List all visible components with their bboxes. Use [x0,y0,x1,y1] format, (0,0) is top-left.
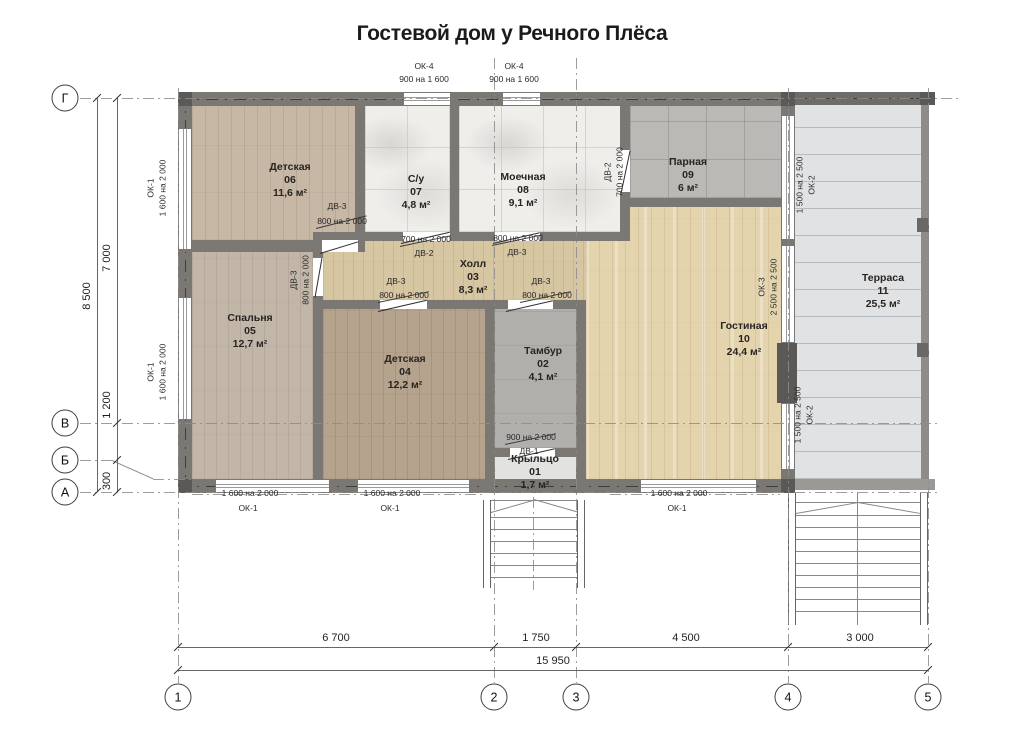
corner-bottom-left [178,479,192,493]
room-area: 6 м² [669,181,707,194]
tag-code: ОК-3 [756,259,768,316]
room-area: 12,7 м² [227,337,272,350]
dim-bottom-total: 15 950 [536,655,570,667]
tag-dv3-moech-code: ДВ-3 [508,247,527,257]
tag-dv1-code: ДВ-1 [520,446,539,456]
tag-ok4-2-size: 900 на 1 600 [489,74,539,84]
terrace-rail-left [788,493,796,625]
terrace-step-7 [796,587,920,588]
tag-dv2-parnaya: ДВ-2 700 на 2 000 [602,147,627,197]
porch-centerline [533,497,534,590]
tag-dv2-su-size: 700 на 2 000 [401,234,451,244]
room-number: 09 [669,169,707,182]
room-name: Тамбур [524,345,562,358]
dim-bottom-seg-1: 6 700 [322,632,350,644]
porch-rail-left [483,500,491,588]
axis-line-a [80,492,940,493]
tag-code: ДВ-3 [288,255,300,305]
room-label-terrasa-11: Терраса 11 25,5 м² [862,272,904,310]
tag-dv3-det06-code: ДВ-3 [328,201,347,211]
axis-circle-b: Б [52,447,79,474]
tag-ok1-bottom-2-code: ОК-1 [380,503,399,513]
tag-ok3-right: ОК-3 2 500 на 2 500 [756,259,781,316]
terrace-step-2 [796,527,920,528]
window-ok1-left-2 [178,297,192,420]
porch-step-6 [491,577,577,578]
axis-line-b-jog [112,460,154,479]
room-label-detskaya-04: Детская 04 12,2 м² [384,353,425,391]
room-area: 4,1 м² [524,370,562,383]
room-area: 8,3 м² [459,283,488,296]
dim-line-left-segments [117,98,118,492]
room-number: 07 [402,186,431,199]
tag-ok1-left-2: ОК-1 1 600 на 2 000 [145,344,170,401]
room-name: Детская [269,161,310,174]
tag-ok1-bottom-1-size: 1 600 на 2 000 [222,488,279,498]
room-label-tambur-02: Тамбур 02 4,1 м² [524,345,562,383]
room-label-detskaya-06: Детская 06 11,6 м² [269,161,310,199]
axis-circle-4: 4 [775,684,802,711]
tag-dv3-tambur-code: ДВ-3 [532,276,551,286]
room-area: 25,5 м² [862,297,904,310]
room-name: Гостиная [720,320,767,333]
dim-left-seg-3: 300 [101,472,113,490]
axis-line-b-end [153,479,193,480]
room-label-moechnaya-08: Моечная 08 9,1 м² [500,171,545,209]
tag-dv3-spalnya: ДВ-3 800 на 2 000 [288,255,313,305]
corner-top-left [178,92,192,106]
terrace-step-3 [796,539,920,540]
axis-circle-5: 5 [915,684,942,711]
plan-title: Гостевой дом у Речного Плёса [0,22,1024,46]
tag-size: 2 500 на 2 500 [768,259,780,316]
tag-size: 1 600 на 2 000 [157,344,169,401]
terrace-step-9 [796,611,920,612]
floor-plan-canvas: Гостевой дом у Речного Плёса [0,0,1024,731]
axis-line-5 [928,88,929,683]
window-ok4-top-1 [403,92,451,106]
terrace-step-1 [796,515,920,516]
porch-diag-right [534,499,578,512]
porch-step-2 [491,529,577,530]
axis-circle-3: 3 [563,684,590,711]
porch-step-1 [491,517,577,518]
tag-code: ОК-2 [804,387,816,444]
axis-line-g [80,98,960,99]
room-label-parnaya-09: Парная 09 6 м² [669,156,707,194]
tag-size: 700 на 2 000 [614,147,626,197]
room-number: 03 [459,271,488,284]
floor-su-07 [365,106,450,232]
room-number: 06 [269,174,310,187]
room-area: 4,8 м² [402,198,431,211]
room-number: 10 [720,333,767,346]
axis-circle-2: 2 [481,684,508,711]
room-label-gostinaya-10: Гостиная 10 24,4 м² [720,320,767,358]
terrace-step-4 [796,551,920,552]
axis-line-4 [788,88,789,683]
dim-line-bottom-total [178,670,928,671]
room-area: 24,4 м² [720,345,767,358]
terrace-step-6 [796,575,920,576]
dim-bottom-seg-3: 4 500 [672,632,700,644]
floor-moechnaya-08 [459,106,620,232]
room-area: 9,1 м² [500,196,545,209]
tag-ok1-bottom-3-code: ОК-1 [667,503,686,513]
room-label-hall-03: Холл 03 8,3 м² [459,258,488,296]
floor-detskaya-04 [323,309,485,479]
room-name: Спальня [227,312,272,325]
porch-step-4 [491,553,577,554]
tag-size: 800 на 2 000 [300,255,312,305]
dim-line-bottom-segments [178,647,928,648]
tag-ok4-1-code: ОК-4 [414,61,433,71]
room-area: 12,2 м² [384,378,425,391]
room-number: 08 [500,184,545,197]
room-number: 05 [227,325,272,338]
terrace-rail-right [920,493,928,625]
porch-rail-right [577,500,585,588]
terrace-diag-right [858,502,920,514]
room-label-su-07: С/у 07 4,8 м² [402,173,431,211]
room-name: Холл [459,258,488,271]
tag-ok1-left-1: ОК-1 1 600 на 2 000 [145,160,170,217]
room-number: 02 [524,358,562,371]
terrace-step-5 [796,563,920,564]
tag-dv3-moech-size: 800 на 2 000 [493,233,543,243]
room-name: Моечная [500,171,545,184]
tag-ok1-bottom-2-size: 1 600 на 2 000 [364,488,421,498]
tag-code: ОК-1 [145,344,157,401]
dim-left-seg-1: 7 000 [101,244,113,272]
room-name: Парная [669,156,707,169]
dim-bottom-seg-4: 3 000 [846,632,874,644]
porch-step-3 [491,541,577,542]
tag-dv3-det04-code: ДВ-3 [387,276,406,286]
porch-step-5 [491,565,577,566]
room-name: С/у [402,173,431,186]
terrace-step-8 [796,599,920,600]
room-name: Терраса [862,272,904,285]
tag-ok4-2-code: ОК-4 [504,61,523,71]
window-ok4-top-2 [502,92,541,106]
dim-bottom-seg-2: 1 750 [522,632,550,644]
tag-code: ОК-2 [806,157,818,214]
axis-circle-g: Г [52,85,79,112]
axis-line-3 [576,58,577,683]
room-label-kryltso-01: Крыльцо 01 1,7 м² [511,453,559,491]
tag-ok1-bottom-1-code: ОК-1 [238,503,257,513]
dim-left-total: 8 500 [81,282,93,310]
room-label-spalnya-05: Спальня 05 12,7 м² [227,312,272,350]
room-number: 04 [384,366,425,379]
tag-ok2-right-bottom: 1 500 на 2 500 ОК-2 [792,387,817,444]
tag-size: 1 500 на 2 500 [794,157,806,214]
room-area: 11,6 м² [269,186,310,199]
axis-line-1 [178,88,179,683]
tag-ok2-right-top: 1 500 на 2 500 ОК-2 [794,157,819,214]
wall-bottom-terrace [795,479,935,490]
wall-top-main [178,92,795,106]
tag-code: ДВ-2 [602,147,614,197]
room-number: 11 [862,285,904,298]
dim-left-seg-2: 1 200 [101,391,113,419]
axis-line-b [80,460,112,461]
wall-h-parnaya-bottom [630,198,781,207]
terrace-steps-centerline [857,493,858,625]
tag-ok1-bottom-3-size: 1 600 на 2 000 [651,488,708,498]
dim-line-left-total [97,98,98,492]
wall-v-tambur-right [576,300,586,493]
axis-circle-1: 1 [165,684,192,711]
axis-circle-v: В [52,410,79,437]
wall-v-su-moechnaya [450,106,459,232]
axis-line-2 [494,58,495,683]
porch-diag-left [491,500,535,513]
tag-size: 1 600 на 2 000 [157,160,169,217]
tag-code: ОК-1 [145,160,157,217]
terrace-diag-left [796,502,858,514]
tag-dv2-su-code: ДВ-2 [415,248,434,258]
window-ok1-left-1 [178,128,192,250]
tag-dv1-size: 900 на 2 000 [506,432,556,442]
room-area: 1,7 м² [511,478,559,491]
tag-ok4-1-size: 900 на 1 600 [399,74,449,84]
tag-size: 1 500 на 2 500 [792,387,804,444]
room-name: Детская [384,353,425,366]
tag-dv3-det04-size: 800 на 2 000 [379,290,429,300]
room-number: 01 [511,466,559,479]
axis-circle-a: А [52,479,79,506]
